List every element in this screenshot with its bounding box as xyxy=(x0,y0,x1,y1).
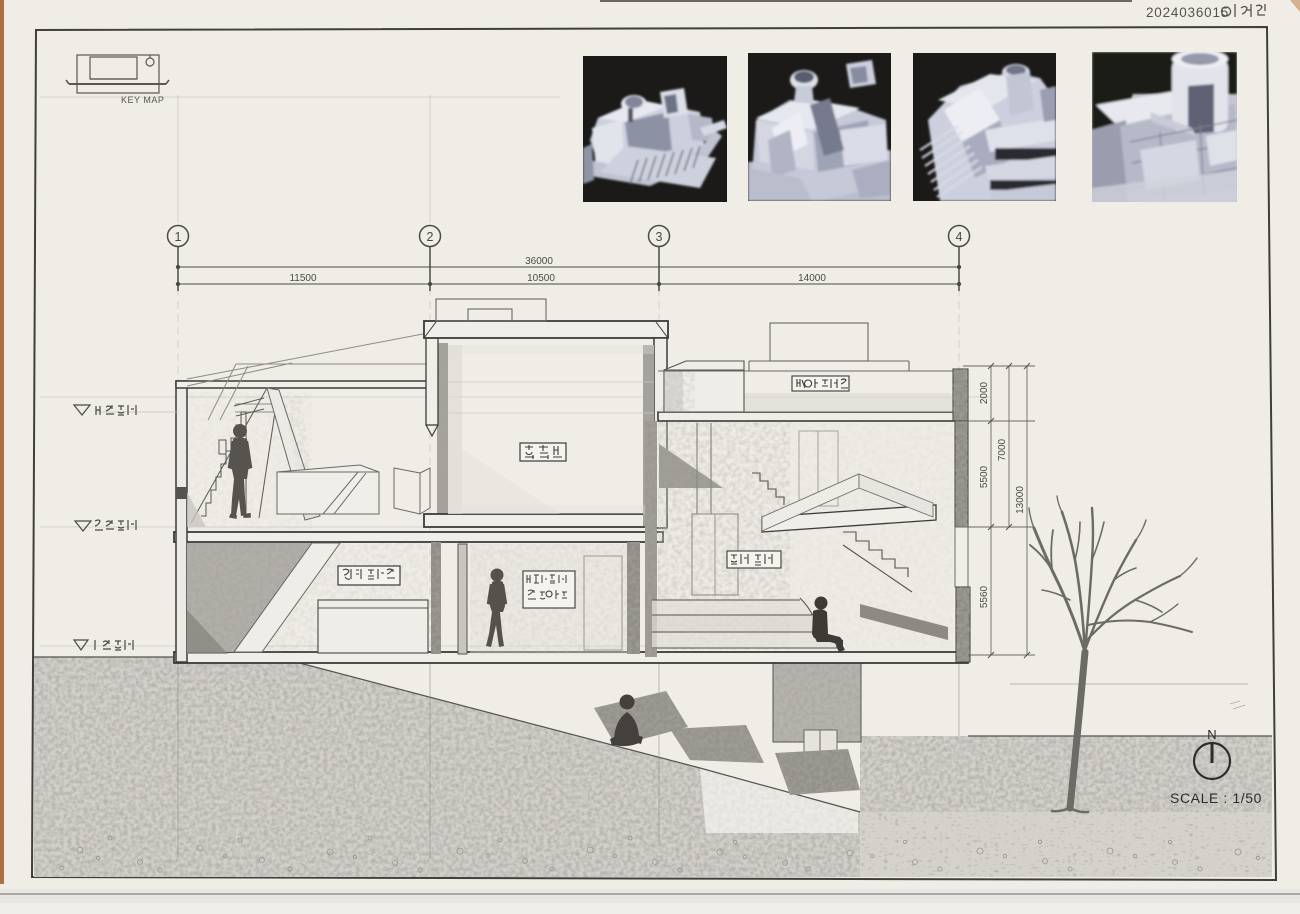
svg-text:13000: 13000 xyxy=(1015,486,1026,514)
svg-text:1: 1 xyxy=(175,230,182,244)
svg-text:5500: 5500 xyxy=(979,465,990,488)
svg-text:11500: 11500 xyxy=(289,273,317,284)
svg-text:N: N xyxy=(1207,727,1216,742)
svg-text:3: 3 xyxy=(656,230,663,244)
svg-text:SCALE : 1/50: SCALE : 1/50 xyxy=(1170,790,1262,806)
svg-text:4: 4 xyxy=(956,230,963,244)
svg-text:7000: 7000 xyxy=(997,438,1008,461)
svg-text:10500: 10500 xyxy=(527,273,555,284)
svg-text:2024036015: 2024036015 xyxy=(1146,5,1229,20)
svg-text:36000: 36000 xyxy=(525,256,553,267)
svg-text:2000: 2000 xyxy=(979,381,990,404)
svg-text:KEY MAP: KEY MAP xyxy=(121,95,164,105)
svg-text:2: 2 xyxy=(427,230,434,244)
svg-text:5560: 5560 xyxy=(979,585,990,608)
svg-text:14000: 14000 xyxy=(798,273,826,284)
